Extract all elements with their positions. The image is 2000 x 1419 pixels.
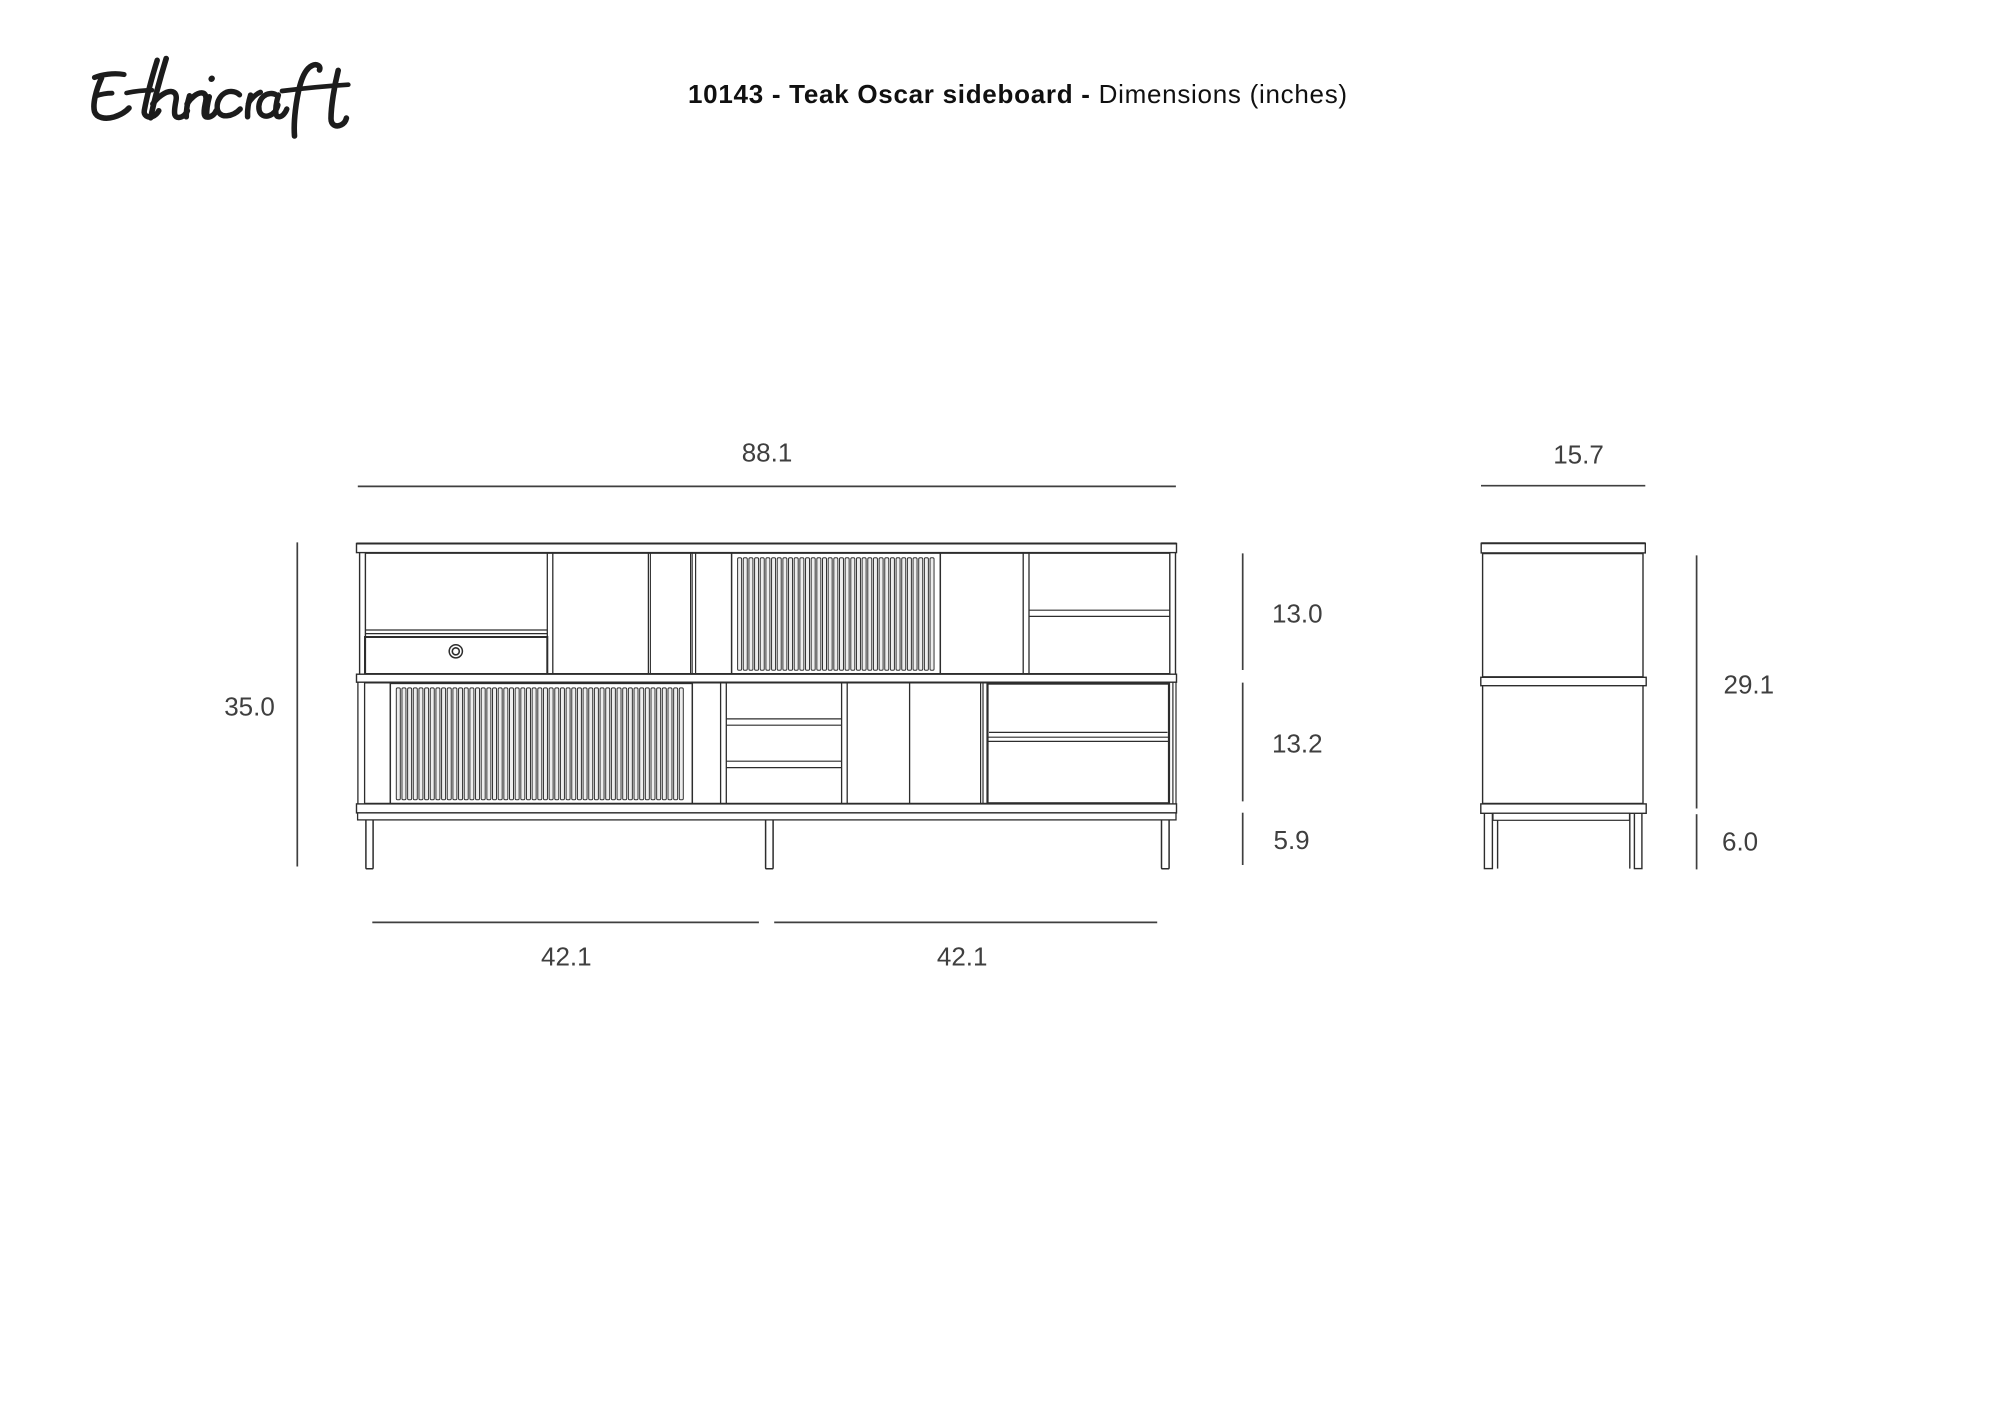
svg-text:42.1: 42.1	[541, 941, 592, 971]
svg-text:5.9: 5.9	[1274, 825, 1310, 855]
svg-text:29.1: 29.1	[1724, 669, 1775, 699]
svg-text:10143 - Teak Oscar sideboard -: 10143 - Teak Oscar sideboard - Dimension…	[688, 79, 1348, 109]
svg-text:13.2: 13.2	[1272, 729, 1323, 759]
svg-text:42.1: 42.1	[937, 941, 988, 971]
svg-text:6.0: 6.0	[1722, 826, 1758, 856]
svg-text:15.7: 15.7	[1553, 440, 1604, 470]
svg-text:13.0: 13.0	[1272, 599, 1323, 629]
svg-text:88.1: 88.1	[742, 438, 793, 468]
svg-text:35.0: 35.0	[224, 692, 275, 722]
